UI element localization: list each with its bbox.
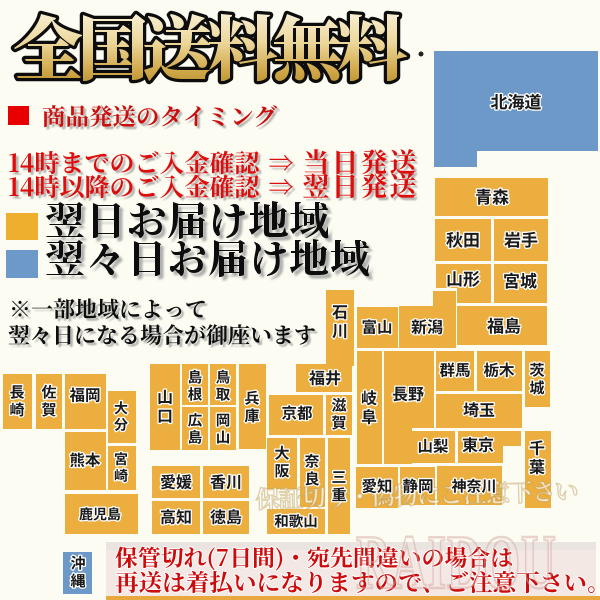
svg-text:RAIDOU: RAIDOU <box>356 520 557 600</box>
